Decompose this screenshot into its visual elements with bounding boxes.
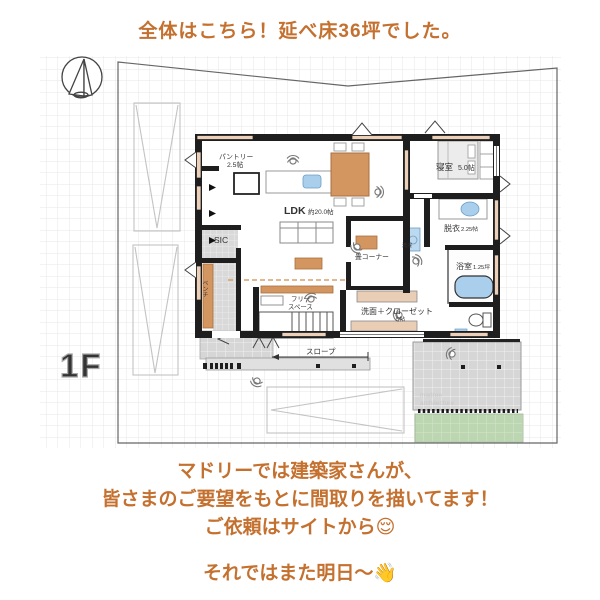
freespace-label-1: フリー bbox=[291, 295, 310, 303]
north-compass-icon bbox=[62, 57, 102, 98]
bedroom-label: 寝室 bbox=[436, 162, 454, 172]
freespace-counter bbox=[261, 286, 333, 293]
freespace-desk bbox=[261, 296, 283, 305]
laundry-label: 洗濯 bbox=[402, 242, 412, 249]
floor-label: 1F bbox=[60, 347, 103, 384]
caption-line-3: ご依頼はサイトから😌 bbox=[0, 514, 600, 542]
post bbox=[461, 365, 465, 369]
lawn bbox=[415, 414, 523, 442]
bath-size-label: 1.25坪 bbox=[473, 263, 490, 271]
post bbox=[352, 364, 356, 368]
post bbox=[316, 364, 320, 368]
fridge bbox=[234, 173, 259, 194]
floorplan-post: 全体はこちら！延べ床36坪でした。 bbox=[0, 0, 600, 600]
washcloset-label: 洗面＋クローゼット bbox=[361, 306, 433, 316]
washcloset-size-label: 5帖 bbox=[396, 315, 405, 323]
bath-label: 浴室 bbox=[456, 261, 472, 271]
freespace-label-2: スペース bbox=[288, 303, 313, 311]
bench-label: ベンチ bbox=[201, 280, 208, 298]
closet-cabinet-bottom bbox=[351, 321, 417, 331]
slope-label: スロープ bbox=[306, 347, 336, 356]
dressing-label: 脱衣 bbox=[444, 223, 460, 233]
dressing-size-label: 2.25帖 bbox=[461, 225, 478, 233]
kitchen-sink bbox=[303, 175, 321, 188]
wash-basin bbox=[461, 202, 479, 216]
bathtub bbox=[455, 276, 493, 298]
bedroom-closet bbox=[480, 141, 494, 179]
watermark-line1: madree bbox=[420, 392, 442, 399]
tatami-label: 畳コーナー bbox=[355, 253, 389, 261]
pantry-size-label: 2.5帖 bbox=[227, 160, 243, 169]
sofa bbox=[280, 222, 333, 243]
pillow bbox=[468, 145, 475, 158]
caption-line-1: マドリーでは建築家さんが、 bbox=[0, 458, 600, 486]
coffee-table bbox=[295, 258, 322, 269]
sic-label: SIC bbox=[214, 235, 228, 245]
toilet bbox=[469, 313, 491, 327]
caption-line-4: それではまた明日〜👋 bbox=[0, 560, 600, 588]
dining-table bbox=[331, 153, 369, 196]
terrace-edge bbox=[423, 339, 520, 342]
caption-line-2: 皆さまのご要望をもとに間取りを描いてます！ bbox=[0, 486, 600, 514]
post bbox=[497, 365, 501, 369]
watermark-line2: architecture bbox=[420, 400, 454, 407]
ldk-label: LDK bbox=[284, 205, 306, 217]
caption-block: マドリーでは建築家さんが、 皆さまのご要望をもとに間取りを描いてます！ ご依頼は… bbox=[0, 458, 600, 588]
ldk-size-label: 約20.0帖 bbox=[308, 207, 334, 216]
bedroom-size-label: 5.0帖 bbox=[458, 163, 475, 172]
pantry-label: パントリー bbox=[219, 153, 254, 161]
entry-floor bbox=[213, 262, 238, 331]
